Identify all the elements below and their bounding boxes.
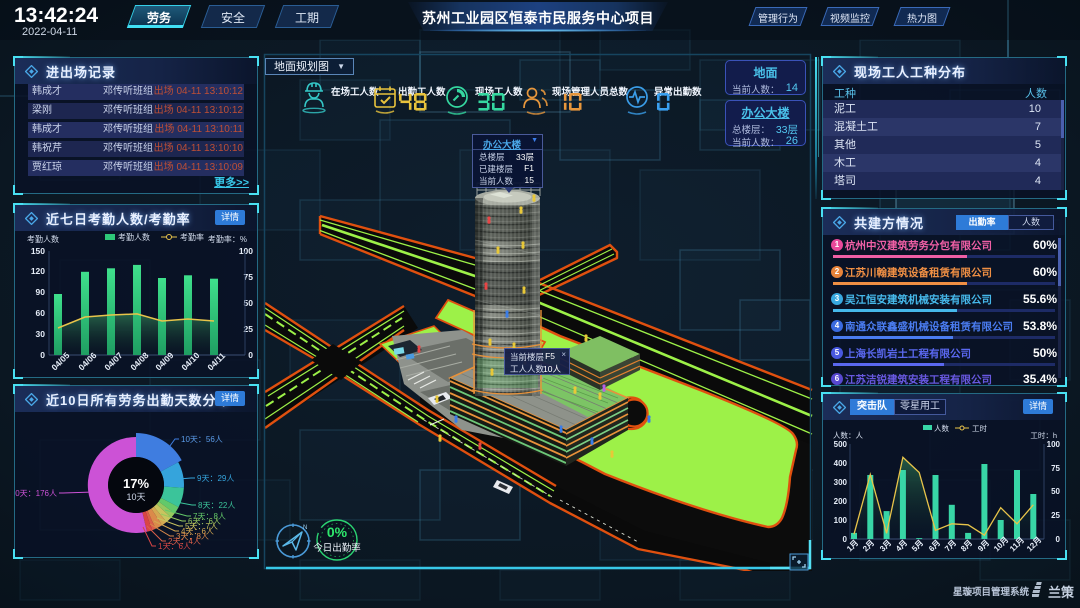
svg-text:1天：6人: 1天：6人 bbox=[158, 542, 191, 551]
svg-text:0: 0 bbox=[248, 350, 253, 360]
svg-text:人数: 人数 bbox=[934, 423, 949, 433]
svg-text:90: 90 bbox=[36, 287, 46, 297]
svg-text:考勤率：%: 考勤率：% bbox=[208, 234, 247, 244]
svg-text:10天：56人: 10天：56人 bbox=[181, 435, 223, 444]
svg-text:工时：h: 工时：h bbox=[1030, 430, 1057, 440]
svg-text:120: 120 bbox=[31, 266, 45, 276]
svg-text:工时: 工时 bbox=[972, 423, 987, 433]
svg-text:2月: 2月 bbox=[861, 538, 876, 553]
svg-text:9天：29人: 9天：29人 bbox=[197, 474, 234, 483]
svg-text:0: 0 bbox=[1056, 535, 1061, 544]
svg-text:10天: 10天 bbox=[126, 492, 145, 502]
svg-text:150: 150 bbox=[31, 246, 45, 256]
svg-text:0天：176人: 0天：176人 bbox=[15, 489, 57, 498]
svg-text:0: 0 bbox=[40, 350, 45, 360]
svg-text:8月: 8月 bbox=[959, 538, 974, 553]
svg-text:9月: 9月 bbox=[976, 538, 991, 553]
svg-text:7月: 7月 bbox=[943, 538, 958, 553]
svg-text:6月: 6月 bbox=[927, 538, 942, 553]
svg-text:200: 200 bbox=[834, 497, 848, 506]
svg-text:300: 300 bbox=[834, 478, 848, 487]
svg-text:17%: 17% bbox=[123, 476, 149, 491]
svg-text:100: 100 bbox=[1047, 440, 1061, 449]
svg-text:75: 75 bbox=[1051, 464, 1060, 473]
svg-text:3月: 3月 bbox=[878, 538, 893, 553]
svg-text:400: 400 bbox=[834, 459, 848, 468]
svg-text:5月: 5月 bbox=[910, 538, 925, 553]
svg-text:考勤人数: 考勤人数 bbox=[118, 232, 150, 242]
svg-text:4月: 4月 bbox=[894, 538, 909, 553]
svg-text:0: 0 bbox=[843, 535, 848, 544]
svg-text:8天：22人: 8天：22人 bbox=[198, 501, 235, 510]
svg-text:50: 50 bbox=[1051, 487, 1060, 496]
svg-text:1月: 1月 bbox=[845, 538, 860, 553]
svg-text:考勤人数: 考勤人数 bbox=[27, 234, 59, 244]
svg-text:100: 100 bbox=[834, 516, 848, 525]
svg-text:100: 100 bbox=[239, 246, 253, 256]
svg-text:考勤率: 考勤率 bbox=[180, 232, 204, 242]
svg-text:人数：人: 人数：人 bbox=[833, 430, 863, 440]
svg-text:25: 25 bbox=[1051, 511, 1060, 520]
svg-text:N: N bbox=[303, 525, 307, 531]
svg-text:30: 30 bbox=[36, 329, 46, 339]
svg-text:60: 60 bbox=[36, 308, 46, 318]
svg-text:500: 500 bbox=[834, 440, 848, 449]
